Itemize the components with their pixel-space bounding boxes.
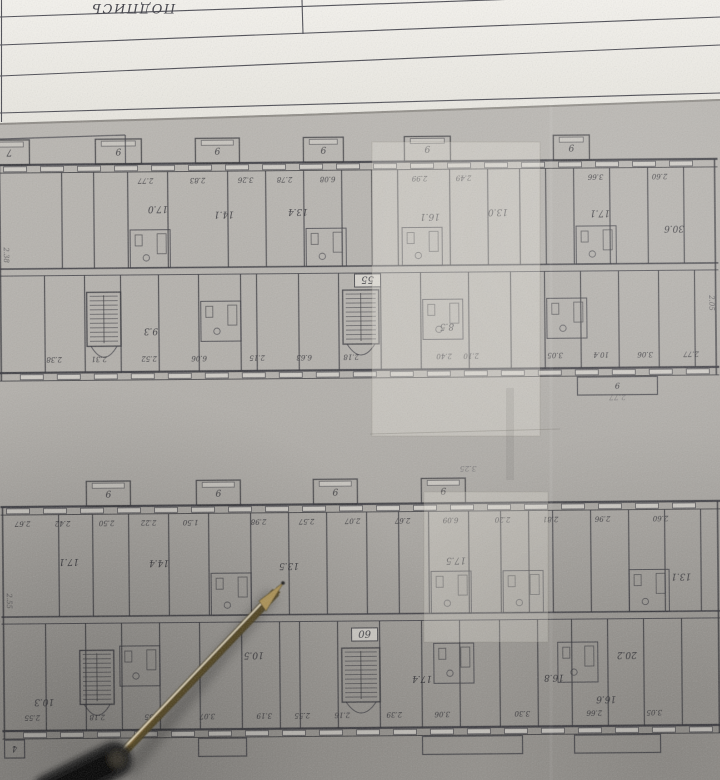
scene-svg: ПОДПИСЬ 7999999552.772.833.262.786.082.9… — [0, 0, 720, 780]
photo-grain-overlay — [0, 0, 720, 780]
photographed-floor-plan-document: ПОДПИСЬ 7999999552.772.833.262.786.082.9… — [0, 0, 720, 780]
